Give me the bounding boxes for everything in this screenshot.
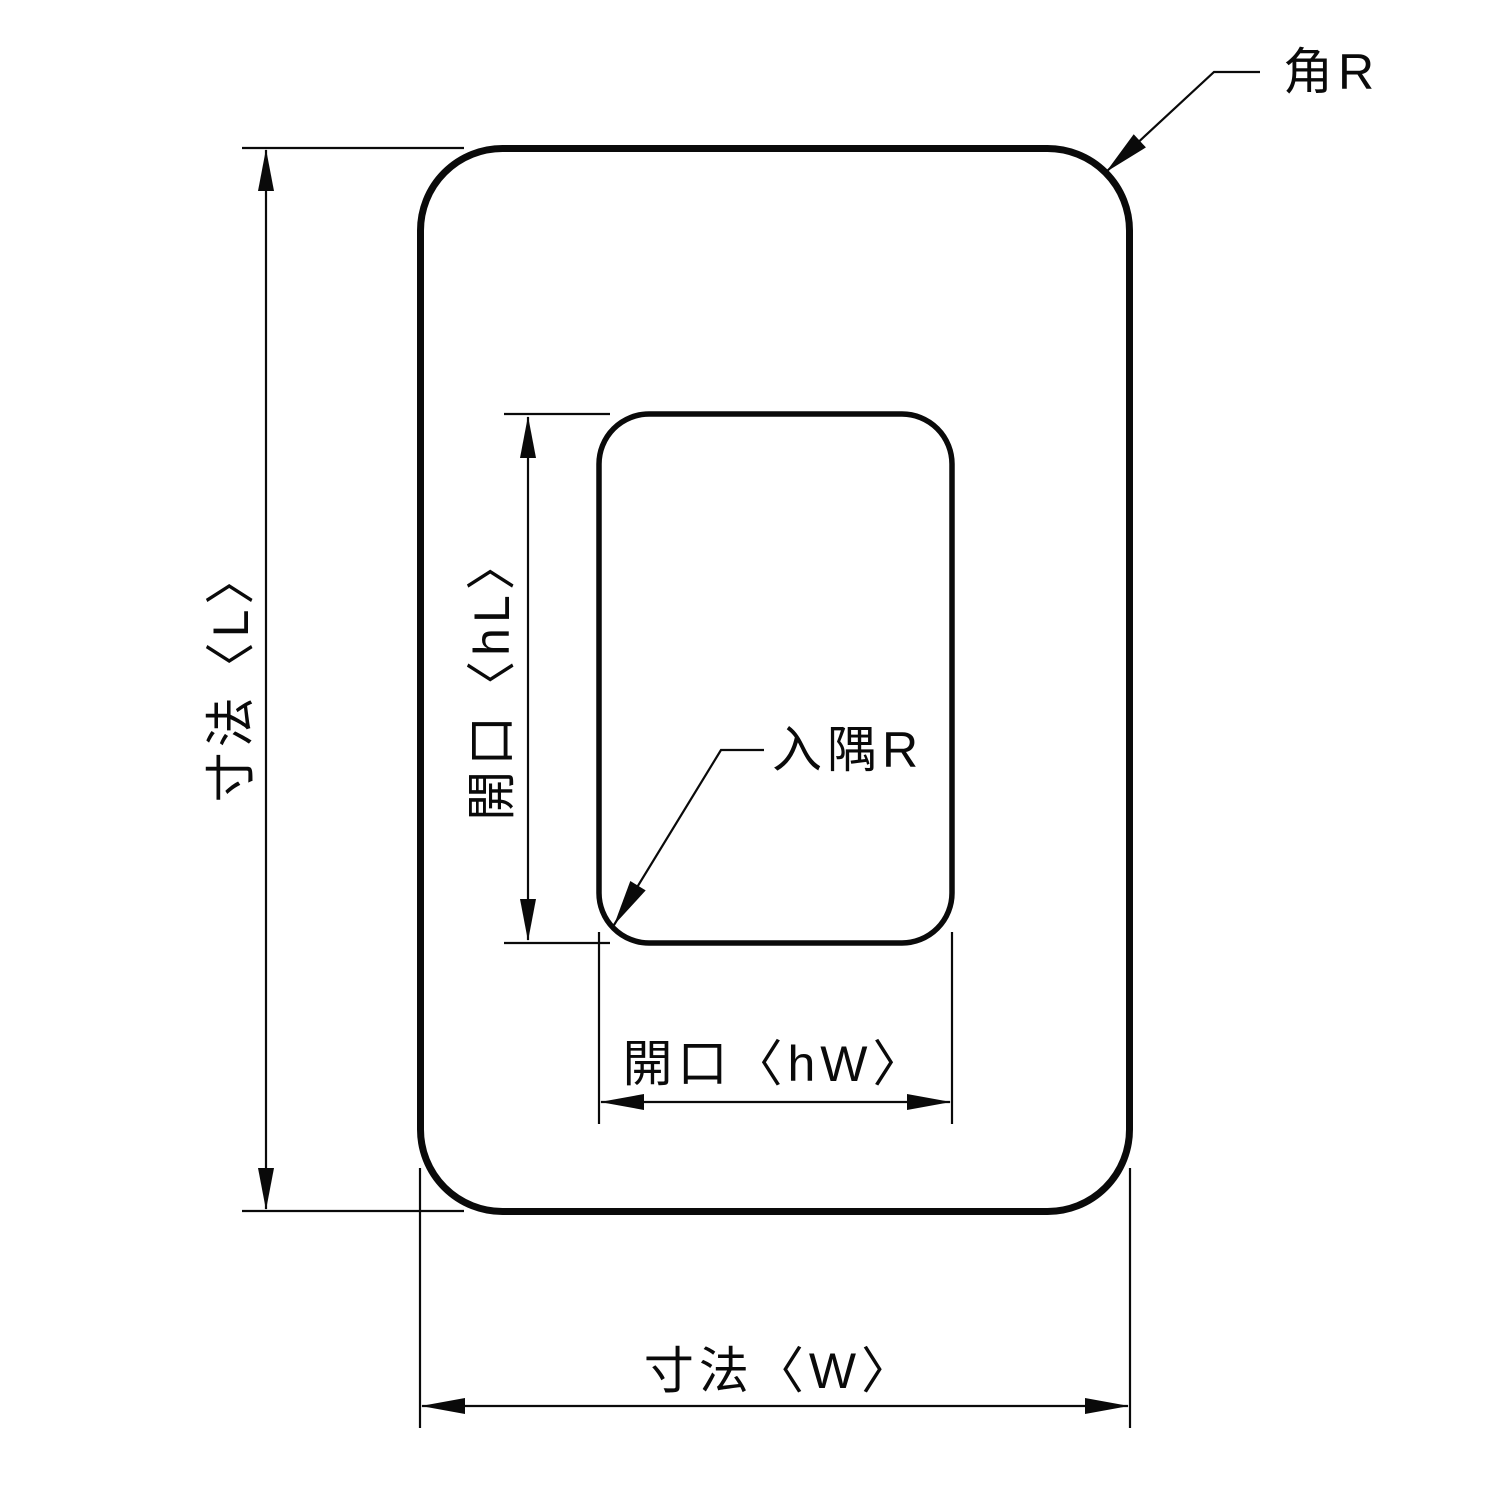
technical-drawing-canvas: 角R 寸法〈L〉 開口〈hL〉 入隅R 開口〈hW〉 寸法〈W〉 (0, 0, 1500, 1500)
leader-inner-corner-r-arrow (614, 881, 646, 925)
label-dimension-width: 寸法〈W〉 (644, 1346, 916, 1396)
dim-hl-arrow-bottom (520, 899, 536, 941)
dim-l-arrow-top (258, 149, 274, 191)
label-corner-radius: 角R (1283, 47, 1379, 97)
dim-l-arrow-bottom (258, 1168, 274, 1210)
label-inner-corner-radius: 入隅R (772, 725, 923, 775)
dim-hw-arrow-left (600, 1094, 644, 1110)
dim-hw-arrow-right (907, 1094, 951, 1110)
dim-w-arrow-left (421, 1398, 465, 1414)
label-opening-width: 開口〈hW〉 (623, 1039, 928, 1089)
label-opening-length: 開口〈hL〉 (467, 535, 517, 821)
dim-hl-arrow-top (520, 416, 536, 458)
dim-w-arrow-right (1085, 1398, 1129, 1414)
label-dimension-length: 寸法〈L〉 (206, 550, 256, 803)
